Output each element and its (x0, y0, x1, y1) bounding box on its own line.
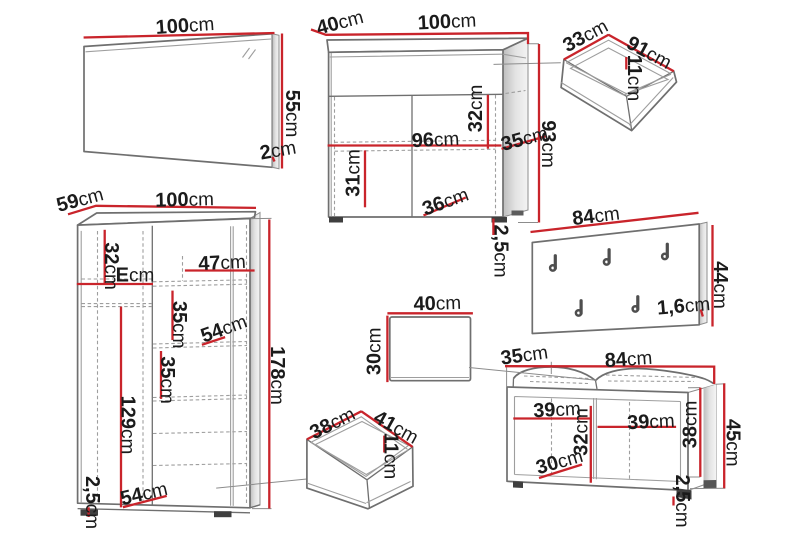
svg-text:40cm: 40cm (413, 292, 461, 316)
svg-text:39cm: 39cm (627, 410, 676, 434)
svg-text:2,5cm: 2,5cm (671, 474, 693, 527)
svg-text:2,5cm: 2,5cm (81, 476, 103, 529)
svg-text:100cm: 100cm (155, 188, 214, 212)
svg-text:45cm: 45cm (721, 419, 743, 467)
svg-text:11cm: 11cm (623, 55, 645, 101)
svg-text:30cm: 30cm (364, 328, 386, 376)
svg-text:32cm: 32cm (465, 85, 487, 133)
svg-text:47cm: 47cm (198, 251, 247, 275)
svg-text:11cm: 11cm (380, 433, 402, 479)
svg-text:44cm: 44cm (709, 261, 731, 309)
svg-text:178cm: 178cm (266, 346, 288, 405)
svg-text:2,5cm: 2,5cm (490, 224, 512, 277)
svg-text:38cm: 38cm (679, 401, 701, 449)
svg-text:55cm: 55cm (281, 90, 303, 138)
svg-text:84cm: 84cm (571, 202, 621, 230)
svg-text:Ecm: Ecm (116, 265, 155, 287)
svg-text:100cm: 100cm (417, 9, 477, 34)
svg-text:84cm: 84cm (604, 347, 653, 372)
svg-text:31cm: 31cm (343, 149, 365, 197)
svg-text:35cm: 35cm (156, 356, 178, 404)
svg-text:35cm: 35cm (168, 301, 190, 349)
svg-text:96cm: 96cm (411, 128, 460, 152)
svg-text:129cm: 129cm (117, 396, 139, 455)
